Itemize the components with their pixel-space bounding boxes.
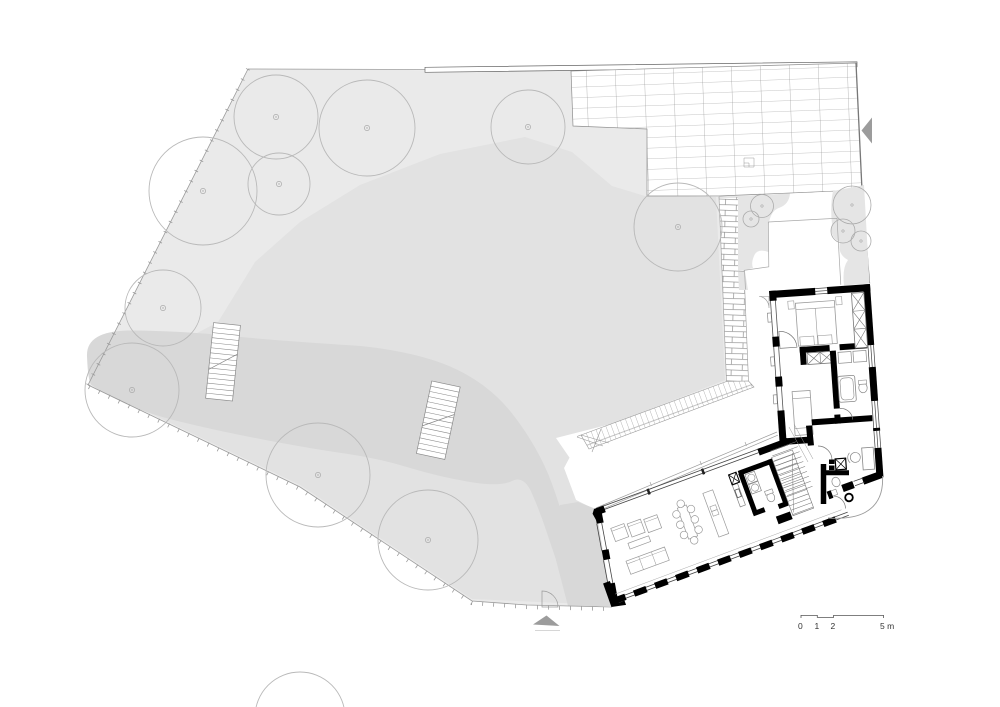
svg-text:2: 2	[831, 621, 836, 631]
svg-text:0: 0	[798, 621, 803, 631]
svg-text:5 m: 5 m	[880, 621, 894, 631]
svg-text:1: 1	[815, 621, 820, 631]
